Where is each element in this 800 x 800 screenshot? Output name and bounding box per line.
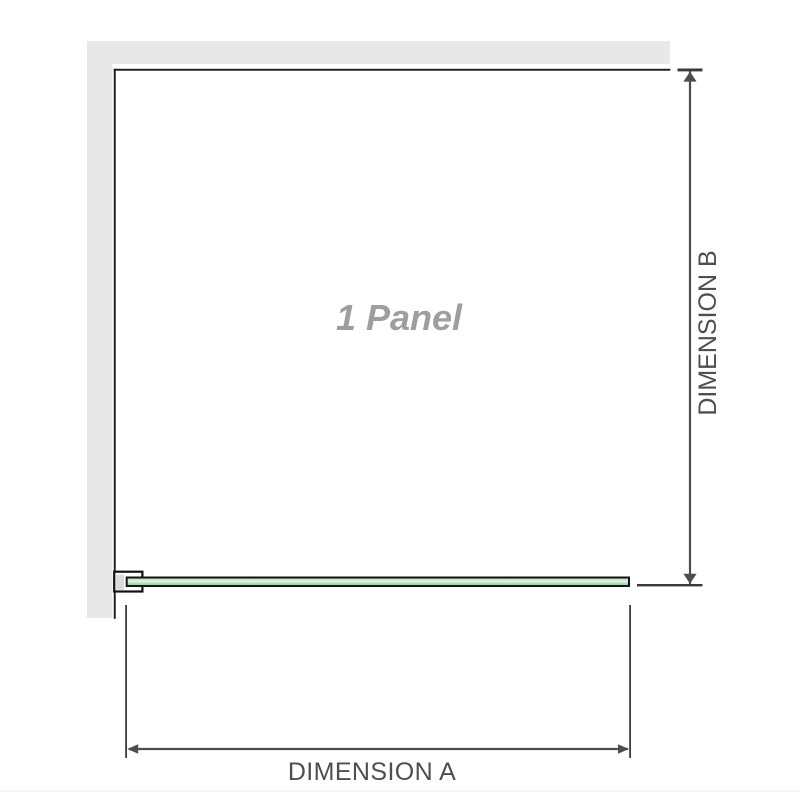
svg-text:1 Panel: 1 Panel <box>336 297 463 338</box>
svg-text:DIMENSION B: DIMENSION B <box>694 250 722 415</box>
svg-text:DIMENSION A: DIMENSION A <box>288 758 456 786</box>
